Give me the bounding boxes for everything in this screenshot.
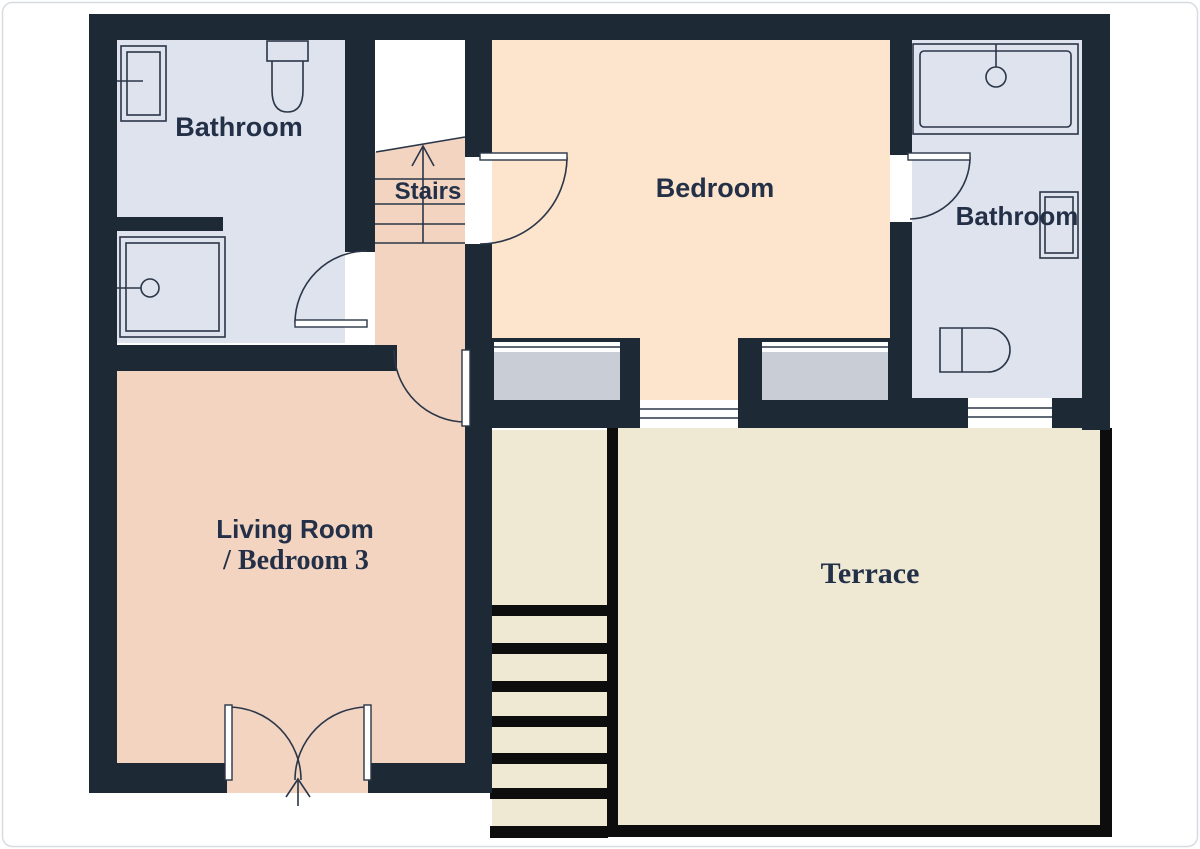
label-stairs: Stairs [395,178,462,205]
label-terrace: Terrace [821,557,920,590]
stair-tread [490,788,608,799]
wall-bath1-right [345,40,375,252]
wall-bedroom-left-upper [465,37,492,157]
bedroom-window-left [494,342,620,400]
outside-stairs-floor [492,430,607,826]
wall-living-top [89,345,397,371]
floor-plan: Bathroom Stairs Bedroom Bathroom Living … [0,0,1200,849]
wall-right-outer [1082,14,1110,430]
terrace-door-threshold [640,400,738,428]
wall-bedroom-bathroom-upper [890,37,912,155]
stair-tread-bottom [490,826,608,838]
wall-bottom-left-a [89,763,227,793]
stair-tread [490,643,608,654]
window-sill [762,352,888,400]
stairs-floor [375,137,465,345]
label-bathroom-right: Bathroom [956,201,1079,231]
stair-tread [490,716,608,727]
window-sill [494,352,620,400]
terrace-rail-right [1100,428,1112,837]
bedroom-window-right [762,342,888,400]
threshold [640,400,738,428]
terrace [607,424,1112,837]
label-bedroom: Bedroom [656,173,775,203]
stair-tread [490,605,608,616]
stair-tread [490,753,608,764]
wall-bath1-stub [89,217,223,231]
bathroom-right-window [968,398,1052,428]
wall-top [89,14,1110,40]
terrace-floor [618,428,1100,825]
bedroom-terrace-bay [640,338,738,400]
label-bathroom-top-left: Bathroom [175,112,303,142]
wall-bedroom-left-lower [465,244,492,345]
stairwell-void [375,40,465,152]
outside-stairs [490,430,608,838]
wall-bedroom-bathroom-lower [890,222,912,428]
hallway-floor [397,345,465,375]
label-living-room-line1: Living Room [216,514,373,544]
terrace-rail-left [607,424,618,837]
label-living-room-line2: / Bedroom 3 [222,545,369,576]
terrace-rail-bottom [607,825,1112,837]
stair-tread [490,681,608,692]
wall-left [89,14,117,793]
window-glass [968,398,1052,428]
